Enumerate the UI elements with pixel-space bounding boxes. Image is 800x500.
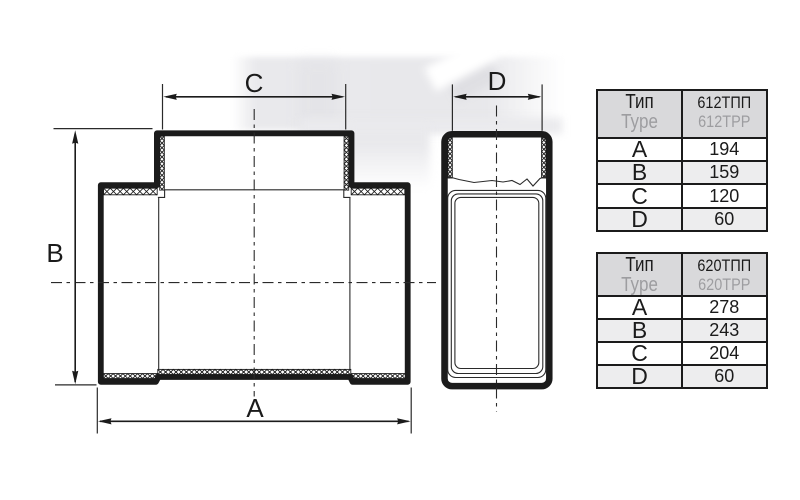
svg-text:D: D [488, 66, 507, 96]
svg-text:C: C [245, 68, 264, 98]
svg-text:A: A [246, 393, 264, 423]
svg-text:B: B [46, 238, 63, 268]
